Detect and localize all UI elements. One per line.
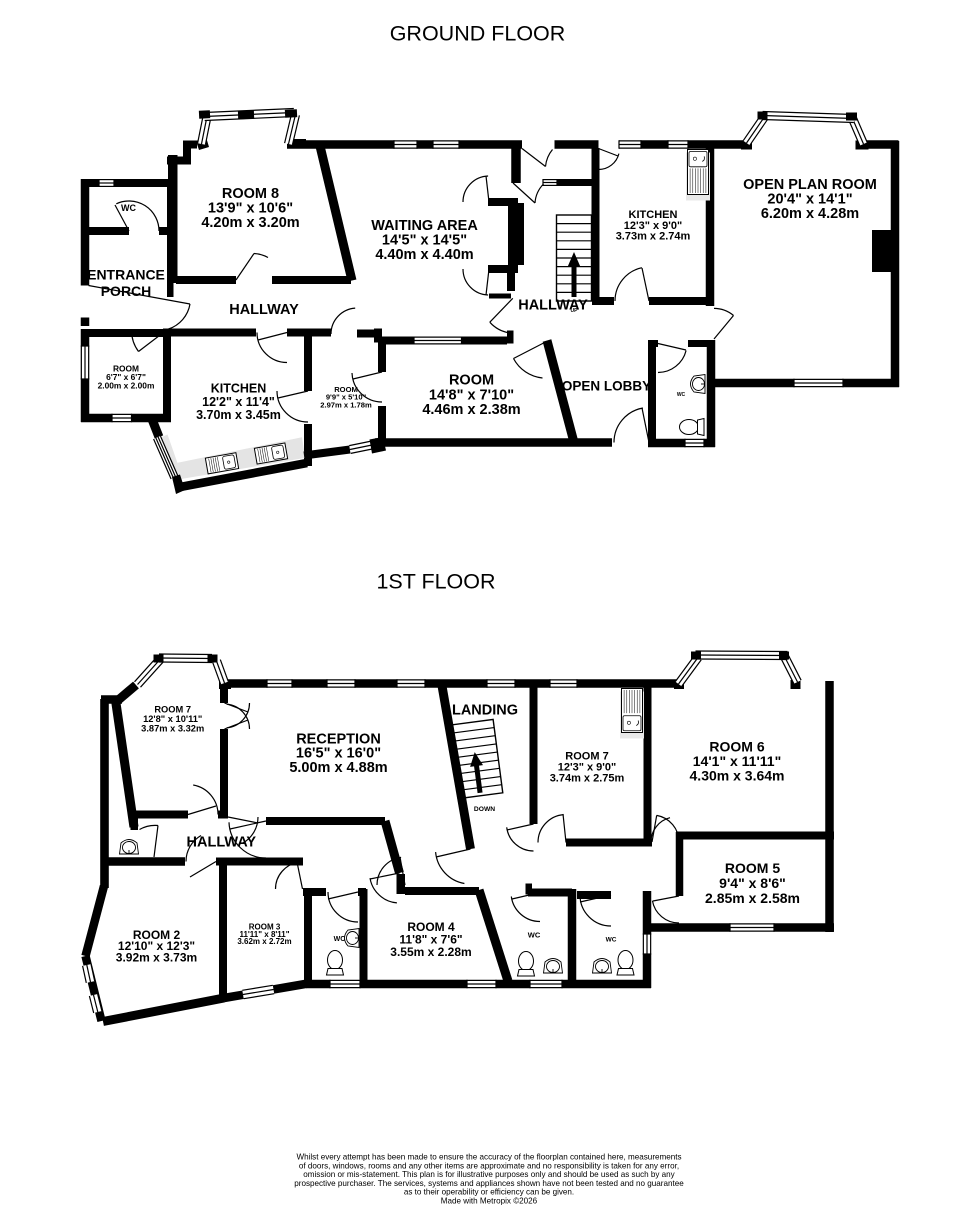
svg-text:4.40m x 4.40m: 4.40m x 4.40m [375, 247, 473, 263]
svg-text:2.97m x 1.78m: 2.97m x 1.78m [320, 400, 372, 409]
svg-text:2.00m x 2.00m: 2.00m x 2.00m [98, 381, 155, 391]
svg-text:PORCH: PORCH [101, 283, 152, 299]
svg-text:3.62m x 2.72m: 3.62m x 2.72m [237, 937, 291, 946]
svg-text:WC: WC [677, 392, 686, 398]
svg-text:ENTRANCE: ENTRANCE [87, 267, 165, 283]
svg-text:KITCHEN: KITCHEN [211, 382, 267, 396]
svg-text:9'4" x 8'6": 9'4" x 8'6" [719, 875, 786, 891]
svg-text:2.85m x 2.58m: 2.85m x 2.58m [705, 890, 800, 906]
svg-text:HALLWAY: HALLWAY [187, 835, 257, 851]
svg-text:3.74m x 2.75m: 3.74m x 2.75m [550, 773, 625, 785]
svg-text:5.00m x 4.88m: 5.00m x 4.88m [289, 760, 387, 776]
svg-text:HALLWAY: HALLWAY [229, 302, 299, 318]
svg-text:14'8" x 7'10": 14'8" x 7'10" [429, 387, 514, 403]
svg-text:HALLWAY: HALLWAY [518, 297, 588, 313]
svg-text:3.92m x 3.73m: 3.92m x 3.73m [116, 950, 197, 964]
svg-text:12'2" x 11'4": 12'2" x 11'4" [202, 395, 275, 409]
svg-text:prospective purchaser. The ser: prospective purchaser. The services, sys… [294, 1179, 684, 1188]
svg-text:Made with Metropix ©2026: Made with Metropix ©2026 [441, 1197, 538, 1206]
svg-text:4.20m x 3.20m: 4.20m x 3.20m [201, 215, 299, 231]
svg-text:3.55m x 2.28m: 3.55m x 2.28m [390, 945, 471, 959]
svg-text:4.30m x 3.64m: 4.30m x 3.64m [690, 767, 785, 783]
svg-text:LANDING: LANDING [452, 703, 518, 719]
svg-text:3.73m x 2.74m: 3.73m x 2.74m [616, 231, 691, 243]
svg-text:DOWN: DOWN [474, 806, 495, 813]
svg-text:ROOM 5: ROOM 5 [725, 860, 780, 876]
svg-text:WC: WC [606, 937, 617, 944]
svg-text:as to their operability or eff: as to their operability or efficiency ca… [404, 1188, 574, 1197]
svg-text:WC: WC [334, 936, 346, 943]
svg-text:3.70m x 3.45m: 3.70m x 3.45m [196, 408, 281, 422]
svg-text:of doors, windows, rooms and a: of doors, windows, rooms and any other i… [299, 1161, 679, 1170]
svg-text:WC: WC [121, 203, 136, 213]
svg-text:Whilst every attempt has been: Whilst every attempt has been made to en… [296, 1153, 681, 1162]
svg-text:GROUND FLOOR: GROUND FLOOR [390, 22, 566, 46]
svg-text:6.20m x 4.28m: 6.20m x 4.28m [761, 206, 859, 222]
svg-text:ROOM: ROOM [449, 373, 494, 389]
svg-text:4.46m x 2.38m: 4.46m x 2.38m [422, 402, 520, 418]
svg-text:omission or mis-statement. Thi: omission or mis-statement. This plan is … [303, 1170, 675, 1179]
svg-text:OPEN LOBBY: OPEN LOBBY [562, 379, 651, 394]
svg-text:WC: WC [528, 931, 541, 940]
svg-text:1ST FLOOR: 1ST FLOOR [376, 570, 495, 594]
svg-text:3.87m x 3.32m: 3.87m x 3.32m [141, 724, 204, 734]
